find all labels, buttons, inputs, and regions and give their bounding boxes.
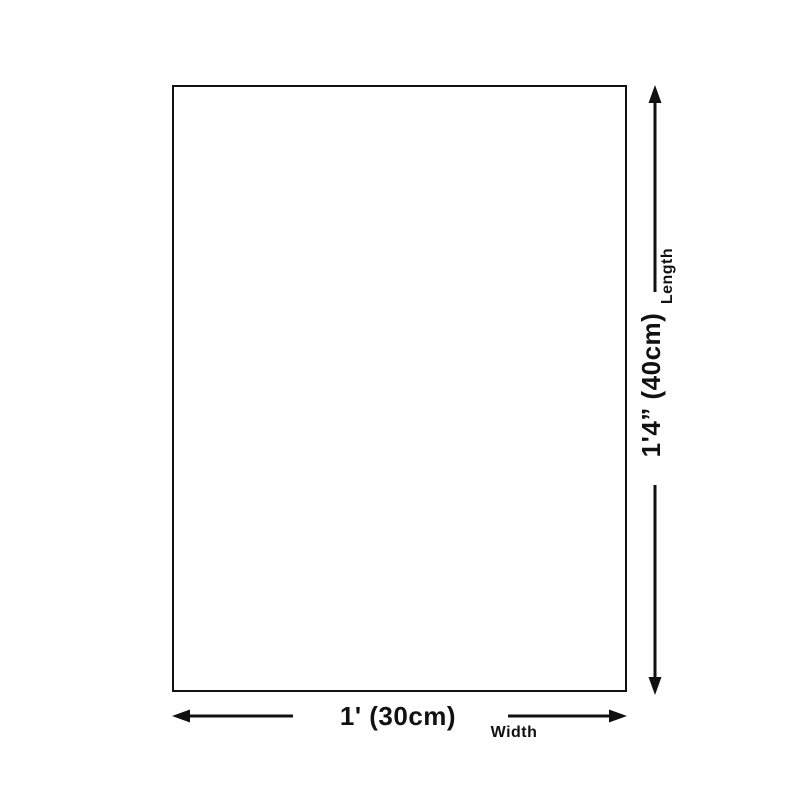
size-diagram: Length 1'4” (40cm) 1' (30cm) Width xyxy=(0,0,800,800)
width-label: Width xyxy=(491,725,538,741)
width-value: 1' (30cm) xyxy=(340,703,456,729)
arrow-up-icon xyxy=(649,85,662,103)
length-value: 1'4” (40cm) xyxy=(638,313,664,458)
product-outline xyxy=(172,85,627,692)
length-label: Length xyxy=(660,248,676,304)
arrow-left-icon xyxy=(172,710,190,723)
arrow-down-icon xyxy=(649,677,662,695)
arrow-right-icon xyxy=(609,710,627,723)
